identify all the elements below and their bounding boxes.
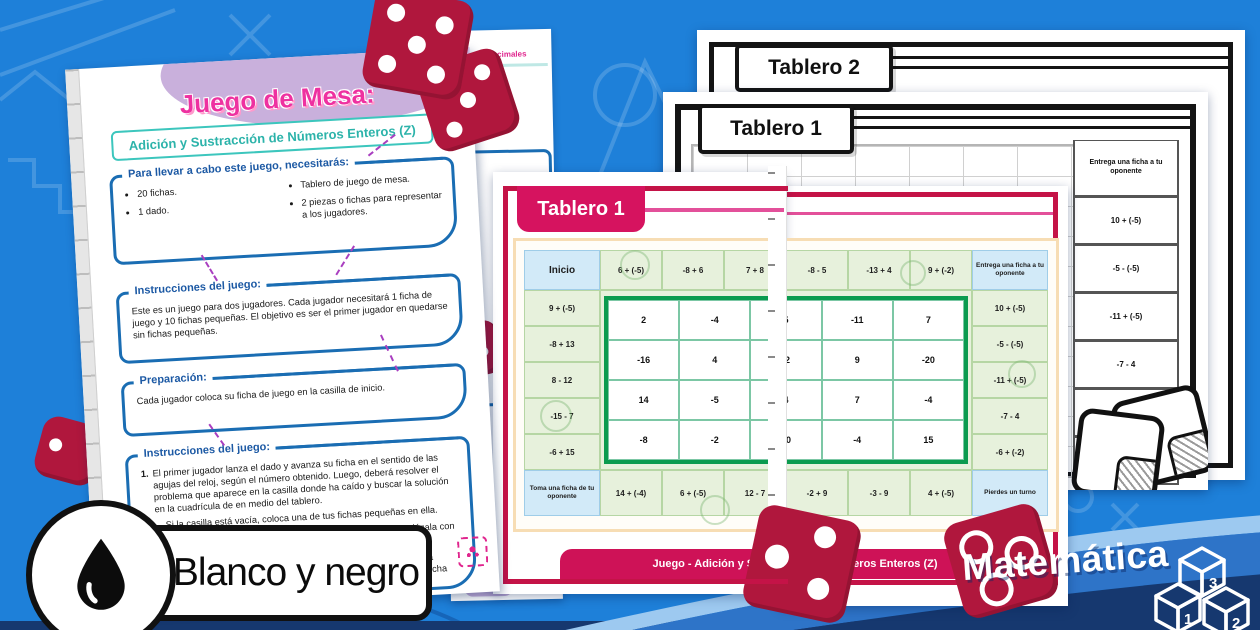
- solution-cell: -5: [679, 380, 750, 420]
- board-cell: Entrega una ficha a tu oponente: [1073, 140, 1179, 197]
- solution-cell: -2: [679, 420, 750, 460]
- instructions-body: Este es un juego para dos jugadores. Cad…: [131, 289, 449, 342]
- header-rule: [223, 363, 454, 379]
- board-cell: -6 + (-2): [972, 434, 1048, 470]
- solution-cell: 14: [608, 380, 679, 420]
- board-cell: -11 + (-5): [1073, 293, 1179, 341]
- materials-box: Para llevar a cabo este juego, necesitar…: [109, 156, 458, 265]
- cell-doodle: [700, 495, 730, 525]
- solution-cell: -4: [893, 380, 964, 420]
- step-number: 1.: [141, 469, 151, 517]
- publisher-stamp-icon: [457, 536, 489, 568]
- gameplay-header: Instrucciones del juego:: [137, 441, 276, 461]
- red-die-icon: [360, 0, 476, 102]
- board-cell: -5 - (-5): [972, 326, 1048, 362]
- header-rule: [275, 436, 458, 449]
- solution-cell: 15: [893, 420, 964, 460]
- solution-cell: -4: [822, 420, 893, 460]
- board-cell-inicio: Inicio: [524, 250, 600, 290]
- sheet-subtitle: Adición y Sustracción de Números Enteros…: [128, 122, 416, 153]
- cube-digit: 1: [1184, 611, 1192, 628]
- cube-digit: 2: [1232, 615, 1240, 630]
- solution-cell: 4: [679, 340, 750, 380]
- materials-header: Para llevar a cabo este juego, necesitar…: [122, 156, 356, 181]
- preparation-header: Preparación:: [133, 371, 213, 387]
- bw2-tab-label: Tablero 2: [768, 56, 860, 80]
- material-item: 2 piezas o fichas para representar a los…: [301, 190, 444, 222]
- solution-cell: -4: [679, 300, 750, 340]
- board-cell: -7 - 4: [972, 398, 1048, 434]
- ink-drop-icon: [64, 533, 138, 617]
- cell-doodle: [620, 250, 650, 280]
- preparation-box: Preparación: Cada jugador coloca su fich…: [121, 363, 469, 437]
- board-cell: -3 - 9: [848, 470, 910, 516]
- solution-cell: -20: [893, 340, 964, 380]
- screenshot-root: Tablero 2 Tablero 1 Entrega una ficha a …: [0, 0, 1260, 630]
- bw1-rule-top: [853, 116, 1194, 119]
- solution-cell: -8: [608, 420, 679, 460]
- solution-cell: -16: [608, 340, 679, 380]
- solution-cell: -11: [822, 300, 893, 340]
- board-cell: Toma una ficha de tu oponente: [524, 470, 600, 516]
- solution-cell: 7: [822, 380, 893, 420]
- cell-doodle: [1008, 360, 1036, 388]
- solution-cell: 2: [608, 300, 679, 340]
- board-cell: -8 - 5: [786, 250, 848, 290]
- instructions-header: Instrucciones del juego:: [128, 278, 267, 298]
- bw2-rule-top: [889, 56, 1233, 59]
- solution-cell: 9: [822, 340, 893, 380]
- back-pink-rule: [780, 212, 1053, 215]
- material-item: Tablero de juego de mesa.: [300, 172, 442, 192]
- board-cell: -5 - (-5): [1073, 245, 1179, 293]
- material-item: 1 dado.: [138, 199, 280, 219]
- board-cell: -6 + 15: [524, 434, 600, 470]
- cube-digit: 3: [1209, 575, 1217, 592]
- board-cell: -8 + 13: [524, 326, 600, 362]
- header-rule: [266, 274, 449, 287]
- cell-doodle: [900, 260, 926, 286]
- solution-cell: 7: [893, 300, 964, 340]
- board-cell: -8 + 6: [662, 250, 724, 290]
- material-item: 20 fichas.: [137, 181, 279, 201]
- cell-doodle: [540, 400, 572, 432]
- bw-die-icon: [1070, 407, 1166, 490]
- board-cell: 10 + (-5): [972, 290, 1048, 326]
- board-cell: Entrega una ficha a tu oponente: [972, 250, 1048, 290]
- board-cell: 14 + (-4): [600, 470, 662, 516]
- bw1-tab-label: Tablero 1: [730, 117, 822, 141]
- header-rule: [370, 157, 443, 164]
- bw1-rule-bottom: [853, 126, 1194, 129]
- board-cell: -7 - 4: [1073, 341, 1179, 389]
- red-die-icon: [740, 502, 863, 625]
- board-cell: 8 - 12: [524, 362, 600, 398]
- bw2-tab: Tablero 2: [735, 44, 893, 92]
- board-cell: 4 + (-5): [910, 470, 972, 516]
- number-cubes-icon: 3 1 2: [1140, 542, 1255, 630]
- board-cell: 9 + (-5): [524, 290, 600, 326]
- instructions-box: Instrucciones del juego: Este es un jueg…: [116, 273, 464, 364]
- bw2-rule-bottom: [889, 66, 1233, 69]
- board-cell: 10 + (-5): [1073, 197, 1179, 245]
- bw1-tab: Tablero 1: [698, 104, 854, 154]
